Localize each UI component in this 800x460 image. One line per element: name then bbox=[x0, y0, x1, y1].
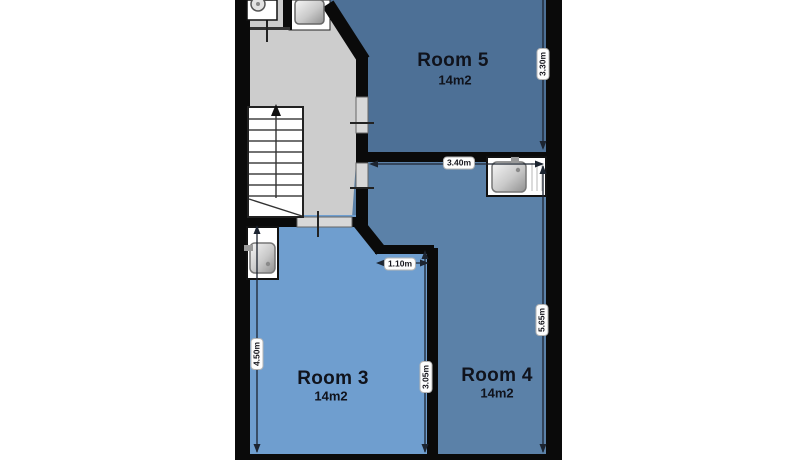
dim-label-room3-notch-width: 1.10m bbox=[384, 258, 416, 271]
room4-area: 14m2 bbox=[480, 386, 513, 401]
sink-basin-icon bbox=[250, 243, 275, 273]
room3-name: Room 3 bbox=[297, 368, 368, 390]
room3-sink-fixture bbox=[244, 227, 278, 279]
dim-label-room5-height: 3.30m bbox=[537, 48, 550, 80]
floor-plan-drawing bbox=[0, 0, 800, 460]
room3-room4-wall bbox=[427, 248, 438, 460]
dim-label-room4-height: 5.65m bbox=[536, 304, 549, 336]
room5-door-opening bbox=[356, 97, 368, 133]
toilet-fixture bbox=[247, 0, 277, 20]
faucet-icon bbox=[511, 157, 519, 163]
room5-name: Room 5 bbox=[417, 50, 488, 72]
outer-wall-bottom bbox=[235, 454, 562, 460]
room5-sink-fixture bbox=[295, 0, 324, 24]
staircase bbox=[248, 104, 303, 217]
room4-name: Room 4 bbox=[461, 365, 532, 387]
room3-door-opening bbox=[297, 217, 352, 227]
room3-area: 14m2 bbox=[314, 389, 347, 404]
faucet-icon bbox=[244, 245, 253, 251]
sink-basin-icon bbox=[492, 162, 526, 192]
dim-label-room4-width: 3.40m bbox=[443, 157, 475, 170]
wc-partition-wall bbox=[250, 27, 290, 30]
toilet-drain-icon bbox=[256, 2, 260, 6]
floor-plan: Room 5 14m2 Room 3 14m2 Room 4 14m2 3.30… bbox=[0, 0, 800, 460]
alcove-wall bbox=[283, 0, 292, 30]
room4-door-opening bbox=[356, 163, 368, 188]
dim-label-room3-height: 4.50m bbox=[251, 338, 264, 370]
dim-label-room3-inner-height: 3.05m bbox=[420, 361, 433, 393]
sink-basin-icon bbox=[295, 0, 324, 24]
hallway-wall-right bbox=[356, 56, 368, 228]
room5-area: 14m2 bbox=[438, 73, 471, 88]
